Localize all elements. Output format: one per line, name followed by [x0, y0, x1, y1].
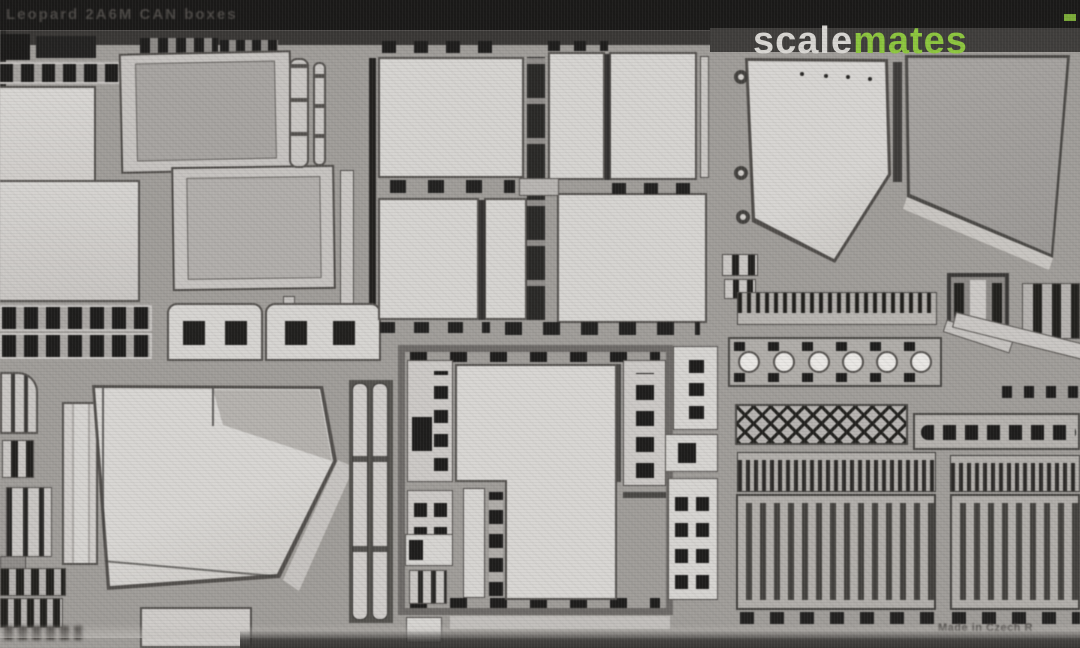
pe-vertical-slot-line — [369, 58, 376, 320]
pe-louver-grille-b — [950, 494, 1080, 610]
pe-panel-m5 — [484, 198, 527, 320]
pe-gap-slot — [893, 62, 902, 182]
watermark-mates-text: mates — [853, 20, 968, 62]
pe-shield-plate-light-face — [742, 55, 895, 268]
pe-comb-teeth — [738, 293, 936, 313]
pe-fold-line-left — [102, 388, 104, 586]
pe-box-panel-2 — [186, 176, 321, 280]
product-title: Leopard 2A6M CAN boxes — [6, 6, 238, 23]
pe-hinge-hole-1 — [738, 351, 760, 373]
pe-slot-col — [689, 357, 704, 419]
pe-right-col-mid-panel — [665, 434, 718, 472]
pe-narrow-bar-2 — [340, 170, 354, 322]
pe-lattice-strip — [735, 404, 908, 445]
pe-side-flap — [62, 402, 98, 565]
pe-divider-m2-m3 — [605, 54, 610, 180]
pe-black-block — [412, 417, 432, 451]
pe-hinge-hole-6 — [910, 351, 932, 373]
pe-oval-slot-strip — [913, 413, 1080, 450]
pe-panel-m4 — [378, 198, 479, 320]
pe-under-dashes-a — [740, 612, 936, 624]
pe-mid-dashes-4 — [505, 322, 700, 335]
pe-plate-left-upper — [0, 86, 96, 182]
pe-bracket-2-hole-a — [285, 321, 307, 345]
pe-box-panel-2-frame — [171, 165, 336, 291]
pe-oval-slots — [921, 425, 1076, 440]
pe-hinge-hole-4 — [842, 351, 864, 373]
pe-comb-spine — [951, 456, 1079, 463]
pe-hinge-dashes-bottom — [734, 373, 936, 382]
pe-bracket-2 — [265, 303, 381, 361]
pe-hinge-dashes-top — [734, 342, 936, 351]
pe-rail-1 — [352, 383, 368, 620]
pe-frame-notch-panel — [463, 488, 485, 598]
pe-ladder-strip-1 — [0, 305, 152, 331]
pe-black-notch — [409, 540, 423, 560]
pe-comb-teeth — [951, 463, 1079, 491]
pe-divider-m4-m5 — [479, 200, 485, 320]
pe-top-dashes-1 — [382, 41, 492, 53]
pe-grid-part-1 — [0, 568, 66, 596]
pe-panel-m2 — [548, 52, 605, 180]
pe-hinge-hole-3 — [808, 351, 830, 373]
pe-mid-dashes-3 — [380, 322, 490, 333]
pe-plate-left-lower — [0, 180, 140, 302]
fret-sheet: Made in Czech R — [0, 0, 1080, 648]
pe-frame-left-low-part-1 — [405, 534, 453, 566]
pe-louver-grille-a — [736, 494, 936, 610]
pe-channel-part — [6, 487, 52, 557]
pe-black-slot — [992, 283, 1002, 323]
photoetch-fret-photo: Made in Czech R Leopard 2A6M CAN boxes s… — [0, 0, 1080, 648]
pe-panel-m3 — [609, 52, 697, 180]
pe-curved-strip-1 — [289, 58, 309, 168]
pe-louver-rail-bottom — [738, 600, 934, 608]
pe-mid-dashes-2 — [612, 183, 697, 194]
pe-frame-notch-slots — [489, 492, 503, 596]
pe-slot-col — [434, 371, 448, 471]
pe-top-right-dashes — [1002, 386, 1080, 398]
pe-black-slot — [678, 443, 696, 463]
pe-hinge-hole-2 — [773, 351, 795, 373]
pe-mid-dashes-1 — [390, 180, 515, 193]
pe-comb-spine — [738, 313, 936, 324]
pe-rail-2 — [372, 383, 388, 620]
pe-small-block-r1 — [722, 254, 758, 276]
pe-ladder-strip-2 — [0, 333, 152, 359]
pe-slot-col — [636, 373, 654, 478]
pe-rivet-hole-2 — [824, 74, 828, 78]
pe-panel-m1 — [378, 57, 524, 178]
pe-hinge-hole-5 — [876, 351, 898, 373]
pe-short-comb-b — [950, 455, 1080, 492]
scalemates-watermark: scalemates — [753, 22, 968, 60]
pe-frame-left-low-part-2 — [409, 570, 447, 604]
pe-louver-rail-bottom — [952, 600, 1078, 608]
pe-slot-block — [2, 440, 34, 478]
pe-hinge-tab-2 — [734, 166, 748, 180]
pe-louver-rail-top — [952, 496, 1078, 503]
pe-rivet-hole-3 — [846, 75, 850, 79]
pe-louver-rail-top — [738, 496, 934, 503]
pe-frame-right-panel — [623, 360, 666, 486]
pe-rivet-hole-1 — [800, 72, 804, 76]
pe-thin-bar-right-of-m3 — [700, 56, 709, 178]
pe-bracket-1-hole-b — [225, 321, 247, 345]
pe-frame-left-top-panel — [407, 360, 453, 482]
pe-hinge-tab-3 — [736, 210, 750, 224]
pe-frame-crossbar — [623, 492, 666, 498]
pe-hinge-tab-1 — [734, 70, 748, 84]
pe-main-frame — [398, 345, 673, 615]
pe-right-col-bottom-panel — [668, 478, 718, 600]
pe-slot-column-2 — [527, 195, 545, 320]
pe-right-col-top-panel — [673, 346, 718, 430]
pe-bracket-1 — [167, 303, 263, 361]
pe-top-dashes-2 — [548, 41, 608, 51]
pe-frame-divider — [617, 364, 621, 482]
pe-frame-plate-lower — [505, 480, 617, 600]
pe-box-panel-1 — [135, 61, 277, 162]
pe-box-unfold-plate — [88, 382, 354, 594]
pe-shield-plate-light — [742, 55, 895, 268]
pe-frame-plate-upper — [455, 364, 617, 482]
pe-box-panel-1-frame — [119, 50, 293, 174]
pe-panel-m6 — [557, 193, 707, 323]
pe-bracket-2-hole-b — [333, 321, 355, 345]
fret-bottom-shadow — [240, 630, 1080, 648]
pe-scrap-block-2 — [36, 36, 96, 58]
pe-scrap-block-1 — [0, 34, 30, 60]
pe-hinge-strip — [728, 337, 942, 387]
watermark-corner-mark — [1064, 14, 1076, 21]
pe-comb-strip-long — [737, 292, 937, 325]
pe-short-comb-a — [737, 452, 936, 492]
pe-curved-strip-2 — [313, 62, 326, 166]
pe-rivet-hole-4 — [868, 77, 872, 81]
pe-slot-col — [696, 489, 709, 589]
pe-arch-part — [0, 372, 38, 434]
pe-fold-line-top — [212, 388, 214, 426]
pe-comb-teeth — [738, 460, 935, 491]
watermark-scale-text: scale — [753, 20, 853, 62]
pe-slot-column-1 — [527, 57, 545, 178]
pe-mid-connector — [519, 178, 559, 196]
pe-slot-col — [675, 489, 688, 589]
pe-comb-spine — [738, 453, 935, 460]
pe-bracket-1-hole-a — [183, 321, 205, 345]
